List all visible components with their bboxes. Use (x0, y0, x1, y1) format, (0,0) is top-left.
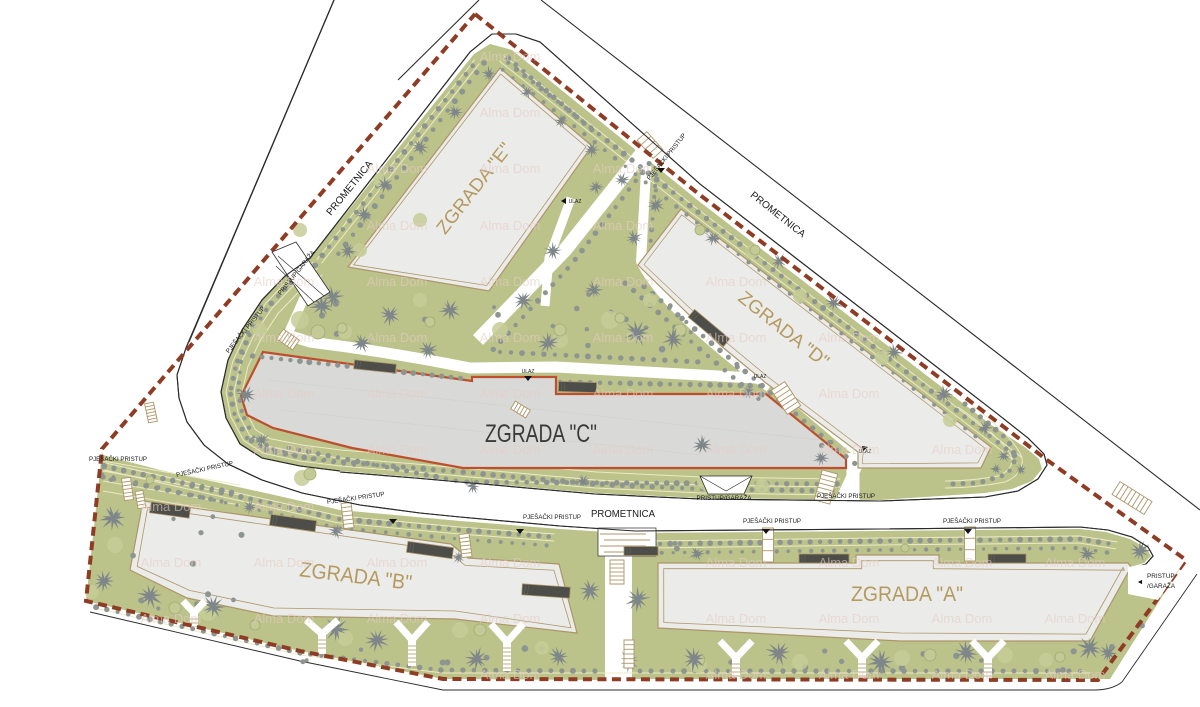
svg-text:Alma Dom: Alma Dom (141, 611, 202, 626)
svg-text:Alma Dom: Alma Dom (706, 555, 767, 570)
svg-text:Alma Dom: Alma Dom (254, 499, 315, 514)
svg-text:Alma Dom: Alma Dom (367, 330, 428, 345)
svg-text:Alma Dom: Alma Dom (480, 667, 541, 682)
svg-text:ULAZ: ULAZ (522, 369, 535, 375)
svg-text:Alma Dom: Alma Dom (254, 555, 315, 570)
svg-text:Alma Dom: Alma Dom (706, 611, 767, 626)
svg-text:Alma Dom: Alma Dom (593, 218, 654, 233)
svg-text:Alma Dom: Alma Dom (141, 499, 202, 514)
svg-text:PRISTUP: PRISTUP (1147, 573, 1175, 580)
svg-text:Alma Dom: Alma Dom (706, 386, 767, 401)
svg-text:Alma Dom: Alma Dom (1045, 611, 1106, 626)
svg-text:Alma Dom: Alma Dom (254, 274, 315, 289)
svg-text:Alma Dom: Alma Dom (819, 386, 880, 401)
svg-text:Alma Dom: Alma Dom (480, 49, 541, 64)
svg-text:Alma Dom: Alma Dom (819, 330, 880, 345)
svg-text:Alma Dom: Alma Dom (480, 555, 541, 570)
svg-text:PRISTUP/GARAŽA: PRISTUP/GARAŽA (697, 493, 753, 502)
svg-text:Alma Dom: Alma Dom (367, 274, 428, 289)
svg-text:Alma Dom: Alma Dom (819, 667, 880, 682)
svg-text:Alma Dom: Alma Dom (254, 330, 315, 345)
svg-text:Alma Dom: Alma Dom (593, 442, 654, 457)
svg-text:Alma Dom: Alma Dom (932, 667, 993, 682)
svg-text:Alma Dom: Alma Dom (141, 555, 202, 570)
svg-text:Alma Dom: Alma Dom (480, 218, 541, 233)
svg-text:Alma Dom: Alma Dom (254, 386, 315, 401)
svg-text:PJEŠAČKI PRISTUP: PJEŠAČKI PRISTUP (817, 491, 875, 500)
svg-text:Alma Dom: Alma Dom (932, 611, 993, 626)
svg-text:Alma Dom: Alma Dom (706, 442, 767, 457)
svg-text:Alma Dom: Alma Dom (1045, 555, 1106, 570)
svg-text:Alma Dom: Alma Dom (480, 611, 541, 626)
svg-text:PROMETNICA: PROMETNICA (591, 509, 655, 520)
svg-text:Alma Dom: Alma Dom (480, 442, 541, 457)
svg-text:Alma Dom: Alma Dom (706, 667, 767, 682)
svg-text:Alma Dom: Alma Dom (480, 105, 541, 120)
svg-text:Alma Dom: Alma Dom (593, 386, 654, 401)
svg-text:PJEŠAČKI PRISTUP: PJEŠAČKI PRISTUP (743, 516, 801, 525)
svg-text:PJEŠAČKI PRISTUP: PJEŠAČKI PRISTUP (943, 516, 1001, 525)
svg-text:Alma Dom: Alma Dom (932, 442, 993, 457)
svg-text:Alma Dom: Alma Dom (254, 442, 315, 457)
svg-text:Alma Dom: Alma Dom (367, 161, 428, 176)
svg-text:Alma Dom: Alma Dom (367, 611, 428, 626)
svg-text:Alma Dom: Alma Dom (367, 386, 428, 401)
svg-text:Alma Dom: Alma Dom (706, 330, 767, 345)
svg-text:Alma Dom: Alma Dom (932, 555, 993, 570)
svg-text:PJEŠAČKI PRISTUP: PJEŠAČKI PRISTUP (523, 512, 581, 521)
svg-text:ULAZ: ULAZ (569, 199, 582, 205)
svg-text:Alma Dom: Alma Dom (480, 386, 541, 401)
svg-text:ULAZ: ULAZ (754, 374, 767, 380)
svg-text:Alma Dom: Alma Dom (480, 274, 541, 289)
svg-text:/GARAŽA: /GARAŽA (1147, 581, 1176, 590)
svg-text:Alma Dom: Alma Dom (819, 442, 880, 457)
svg-text:Alma Dom: Alma Dom (593, 161, 654, 176)
svg-text:Alma Dom: Alma Dom (1045, 667, 1106, 682)
svg-text:Alma Dom: Alma Dom (480, 330, 541, 345)
svg-text:Alma Dom: Alma Dom (480, 161, 541, 176)
svg-text:Alma Dom: Alma Dom (367, 442, 428, 457)
svg-text:Alma Dom: Alma Dom (367, 555, 428, 570)
svg-text:Alma Dom: Alma Dom (367, 218, 428, 233)
svg-text:Alma Dom: Alma Dom (706, 274, 767, 289)
svg-text:Alma Dom: Alma Dom (254, 611, 315, 626)
svg-text:Alma Dom: Alma Dom (819, 611, 880, 626)
svg-text:Alma Dom: Alma Dom (819, 555, 880, 570)
svg-text:PJEŠAČKI PRISTUP: PJEŠAČKI PRISTUP (89, 454, 147, 463)
svg-text:◄: ◄ (1137, 579, 1144, 586)
svg-text:Alma Dom: Alma Dom (593, 330, 654, 345)
svg-text:Alma Dom: Alma Dom (593, 274, 654, 289)
svg-text:ZGRADA "A": ZGRADA "A" (851, 583, 963, 606)
